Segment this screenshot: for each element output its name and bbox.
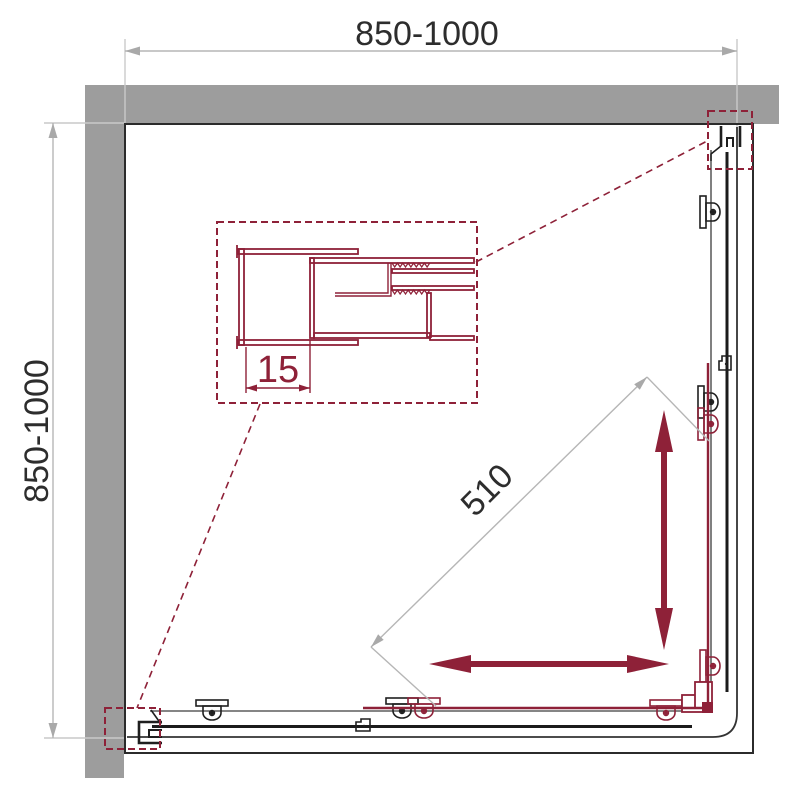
extension-line xyxy=(371,377,709,706)
leader-line xyxy=(476,140,709,262)
arrowhead xyxy=(429,655,471,673)
dimension-entry-510: 510 xyxy=(371,377,709,706)
arrowhead xyxy=(627,655,669,673)
dimension-label-detail: 15 xyxy=(257,349,299,391)
detail-callouts xyxy=(105,111,752,749)
top-wall xyxy=(85,85,779,124)
adjust-profile-top-bar xyxy=(310,258,474,263)
arrowhead xyxy=(246,385,257,392)
slide-arrow-horizontal xyxy=(429,655,669,673)
screw-dot xyxy=(725,363,727,365)
door-stoppers xyxy=(356,356,731,731)
roller-carriage xyxy=(196,700,228,720)
adjust-profile-bottom-bar xyxy=(430,336,474,340)
profile-cross-section-detail xyxy=(237,245,474,349)
slide-direction-arrows xyxy=(429,410,673,673)
rail-outer-edge xyxy=(127,127,737,737)
technical-drawing-canvas: 15 850-1000 850-1000 510 xyxy=(0,0,800,800)
dimension-detail-15: 15 xyxy=(246,340,310,393)
screw-dot xyxy=(363,725,365,727)
adjust-profile-inner-bar xyxy=(314,333,430,338)
corner-entry-hub xyxy=(702,702,713,713)
arrowhead xyxy=(655,608,673,650)
arrowhead xyxy=(49,123,58,138)
shower-enclosure-plan: 15 850-1000 850-1000 510 xyxy=(0,0,800,800)
dimension-label-depth: 850-1000 xyxy=(18,359,56,503)
arrowhead xyxy=(125,47,140,56)
slide-arrow-vertical xyxy=(655,410,673,650)
roller-carriages-black xyxy=(196,196,720,720)
arrowhead xyxy=(299,385,310,392)
dimension-left: 850-1000 xyxy=(18,123,58,738)
wall-profile-flange xyxy=(238,340,358,345)
roller-carriage xyxy=(700,650,720,682)
left-wall xyxy=(85,85,124,778)
dimension-label-entry: 510 xyxy=(454,457,521,524)
adjust-profile-left-edge xyxy=(310,258,314,338)
arrowhead xyxy=(722,47,737,56)
roller-carriage xyxy=(700,196,720,228)
dimension-label-width: 850-1000 xyxy=(355,15,499,53)
dimension-line xyxy=(371,377,647,647)
glass-pocket-bar xyxy=(392,269,474,273)
adjust-profile-right-web xyxy=(427,293,431,337)
dimension-top: 850-1000 xyxy=(125,15,737,56)
door-stopper xyxy=(719,356,731,370)
roller-carriages-red xyxy=(408,408,720,720)
arrowhead xyxy=(49,723,58,738)
wall-profile-flange xyxy=(238,249,358,254)
glass-edge-step xyxy=(335,263,391,296)
glass-pocket-bar xyxy=(392,286,474,290)
walls xyxy=(85,85,779,778)
arrowhead xyxy=(655,410,673,452)
leader-line xyxy=(137,404,260,708)
dimension-extension-lines xyxy=(44,39,737,738)
roller-carriage xyxy=(650,700,682,720)
wall-profile-web xyxy=(239,249,244,345)
